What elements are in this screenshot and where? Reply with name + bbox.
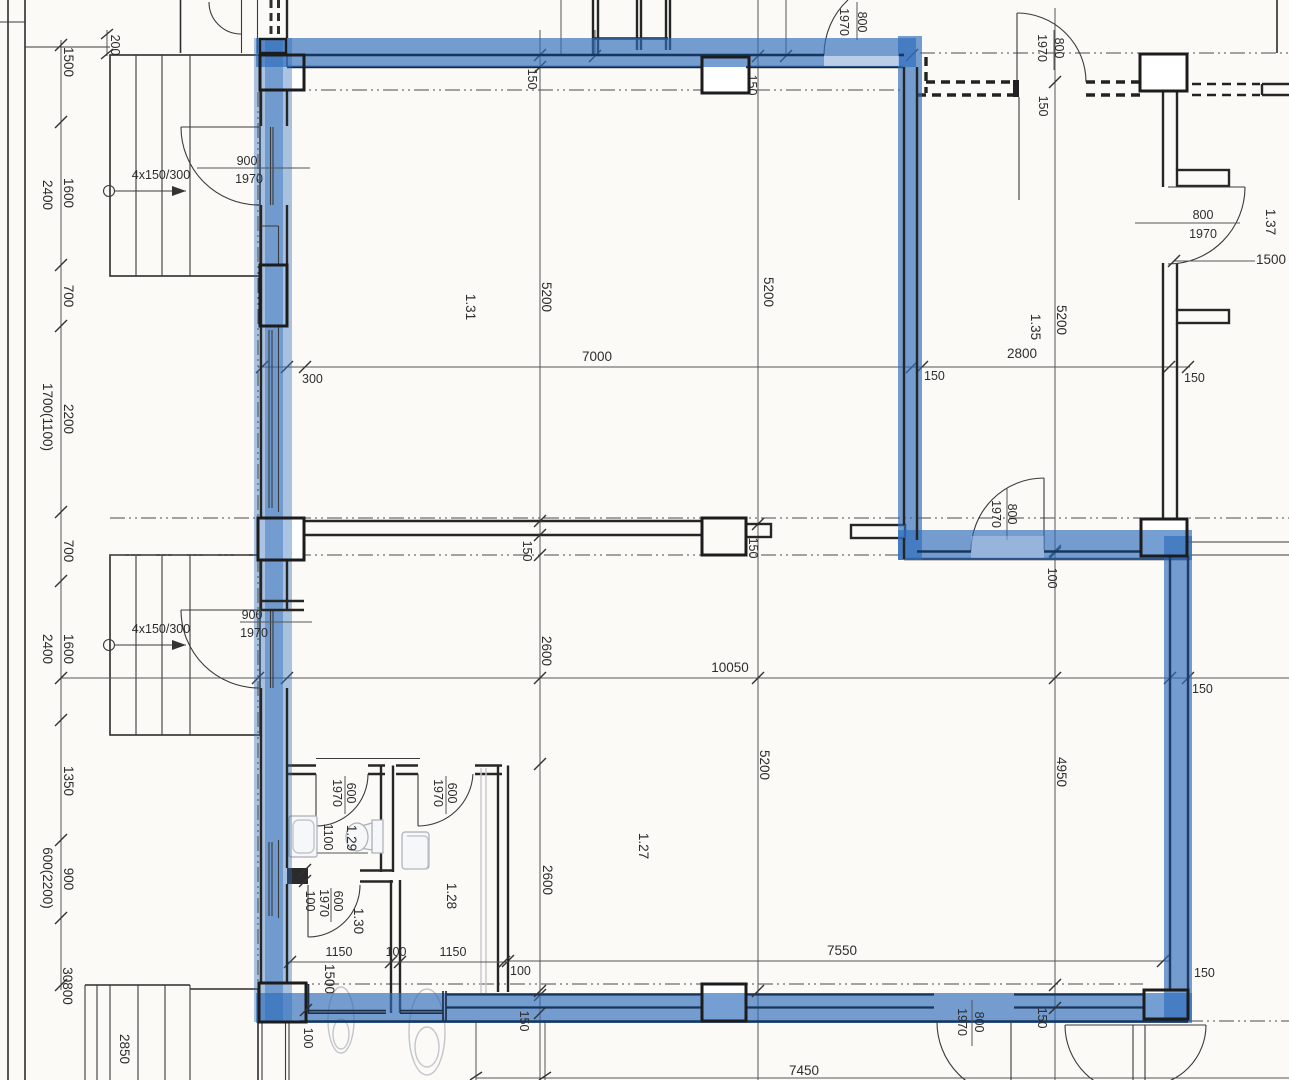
svg-text:1970: 1970 [1035, 34, 1049, 62]
svg-text:1970: 1970 [235, 172, 263, 186]
svg-text:900: 900 [61, 868, 76, 891]
svg-text:900: 900 [237, 154, 258, 168]
svg-text:150: 150 [1184, 371, 1205, 385]
svg-text:100: 100 [1045, 568, 1059, 589]
svg-text:600: 600 [331, 891, 345, 912]
svg-text:1.28: 1.28 [444, 883, 459, 909]
svg-text:800: 800 [1052, 38, 1066, 59]
svg-text:1100: 1100 [321, 824, 335, 851]
svg-text:1970: 1970 [989, 500, 1003, 528]
svg-text:1970: 1970 [1189, 227, 1217, 241]
svg-text:150: 150 [517, 1011, 531, 1032]
svg-text:700: 700 [61, 540, 76, 563]
svg-text:100: 100 [301, 1028, 315, 1049]
svg-text:1970: 1970 [955, 1008, 969, 1036]
svg-text:4x150/300: 4x150/300 [132, 168, 190, 182]
svg-text:200: 200 [108, 35, 122, 56]
svg-text:5200: 5200 [757, 750, 772, 780]
svg-text:800: 800 [855, 12, 869, 33]
svg-text:2400: 2400 [40, 180, 55, 210]
svg-text:100: 100 [386, 945, 407, 959]
svg-text:5200: 5200 [761, 277, 776, 307]
svg-text:1970: 1970 [317, 889, 331, 917]
svg-text:2850: 2850 [117, 1034, 132, 1064]
svg-text:2400: 2400 [40, 634, 55, 664]
svg-text:5200: 5200 [539, 282, 554, 312]
svg-text:150: 150 [1194, 966, 1215, 980]
svg-text:600: 600 [344, 783, 358, 804]
svg-text:2200: 2200 [61, 404, 76, 434]
svg-text:7450: 7450 [789, 1063, 819, 1078]
svg-text:1970: 1970 [240, 626, 268, 640]
svg-text:1500: 1500 [61, 47, 76, 77]
svg-text:1600: 1600 [61, 634, 76, 664]
svg-text:7000: 7000 [582, 349, 612, 364]
svg-text:150: 150 [1035, 1008, 1049, 1029]
svg-text:150: 150 [520, 541, 534, 562]
svg-text:1500: 1500 [1256, 252, 1286, 267]
svg-text:1970: 1970 [330, 779, 344, 807]
svg-text:1150: 1150 [440, 945, 467, 959]
svg-text:4950: 4950 [1054, 757, 1069, 787]
svg-text:1350: 1350 [61, 766, 76, 796]
svg-text:700: 700 [61, 285, 76, 308]
svg-text:1.27: 1.27 [636, 833, 651, 859]
svg-text:30800: 30800 [60, 967, 75, 1005]
svg-text:1600: 1600 [61, 178, 76, 208]
svg-text:150: 150 [746, 538, 760, 559]
svg-text:600: 600 [445, 783, 459, 804]
svg-text:1970: 1970 [431, 779, 445, 807]
svg-text:800: 800 [1005, 504, 1019, 525]
svg-text:900: 900 [242, 608, 263, 622]
svg-text:2800: 2800 [1007, 346, 1037, 361]
svg-text:150: 150 [924, 369, 945, 383]
svg-text:100: 100 [303, 891, 317, 912]
svg-text:300: 300 [302, 372, 323, 386]
svg-text:1700(1100): 1700(1100) [40, 383, 55, 451]
svg-text:600(2200): 600(2200) [40, 847, 55, 909]
svg-text:150: 150 [1192, 682, 1213, 696]
svg-text:1.37: 1.37 [1263, 209, 1278, 235]
svg-text:150: 150 [1036, 96, 1050, 117]
svg-text:1500: 1500 [322, 964, 337, 994]
svg-text:1150: 1150 [326, 945, 353, 959]
svg-text:2600: 2600 [540, 865, 555, 895]
svg-text:7550: 7550 [827, 943, 857, 958]
svg-text:800: 800 [1193, 208, 1214, 222]
svg-text:150: 150 [525, 69, 539, 90]
svg-text:1.30: 1.30 [351, 908, 366, 934]
svg-text:10050: 10050 [711, 660, 749, 675]
svg-text:2600: 2600 [539, 636, 554, 666]
svg-text:4x150/300: 4x150/300 [132, 622, 190, 636]
svg-text:100: 100 [510, 964, 531, 978]
svg-text:1.29: 1.29 [344, 825, 359, 851]
svg-text:1970: 1970 [837, 8, 851, 36]
svg-text:800: 800 [972, 1012, 986, 1033]
svg-text:5200: 5200 [1054, 305, 1069, 335]
svg-text:1.35: 1.35 [1028, 314, 1043, 340]
svg-text:1.31: 1.31 [463, 294, 478, 320]
